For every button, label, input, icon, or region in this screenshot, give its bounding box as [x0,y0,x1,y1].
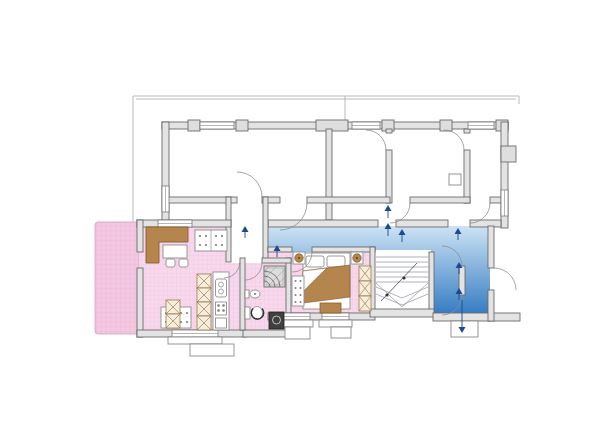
base-cabinet [216,318,227,328]
dining-table [163,245,187,258]
wall [326,129,332,220]
pillow [306,256,324,267]
wall [488,226,494,268]
wall [268,220,378,227]
washing-machine [269,312,284,329]
wall [429,252,434,313]
entrance-porch [451,321,478,337]
window-sill [319,320,352,327]
sink [245,290,260,298]
wall [386,150,392,203]
door-swing-arc [494,268,516,290]
wall [386,129,392,133]
window-sill [280,320,313,327]
door-swing-arc [444,130,464,150]
pilaster [440,120,452,131]
stair-direction-dot [385,293,388,296]
bedroom-furniture [292,252,371,313]
toilet [245,307,264,320]
bench [320,303,341,313]
door-swing-arc [366,130,386,150]
wall [370,309,434,317]
shaft-square [449,174,461,185]
dining-chair [179,259,188,267]
wall [312,247,375,252]
wall [262,258,291,263]
wall [243,330,291,337]
wall [307,197,390,203]
kitchen-counter [213,272,229,330]
sofa-upper [195,230,227,251]
light-well [285,327,310,339]
dining-chair [166,259,175,267]
wardrobe [359,266,371,311]
dresser [292,276,304,306]
window-sill [168,337,222,344]
wall [226,197,231,262]
wall [268,247,292,252]
wall [240,258,245,330]
wall [396,220,448,227]
shower [264,266,285,287]
lamp-center [298,257,300,259]
wall [137,220,143,252]
pilaster [501,146,516,162]
lamp-center [356,257,358,259]
pilaster [236,120,248,131]
wall [410,197,470,203]
floor-plan-page [0,0,600,424]
wall [490,197,501,203]
wall [433,313,489,321]
crosshatch-cabinet-tall [197,274,211,330]
pilaster [188,120,200,131]
wall [470,220,501,227]
crosshatch-cabinet-small [166,300,180,328]
light-well [190,344,234,356]
wall [488,290,494,321]
wall [464,150,470,203]
terrace-region [95,222,139,334]
entry-arrow [385,205,392,211]
pillow [327,256,345,267]
stove [216,302,227,315]
stairwell-floor [373,250,431,311]
wall [263,197,268,262]
wall [137,268,143,337]
stair-direction-dot [402,276,405,279]
light-well [331,327,351,338]
wall [464,129,470,133]
wall [286,258,291,313]
door-swing-arc [237,172,262,197]
floor-plan-drawing [0,0,600,424]
